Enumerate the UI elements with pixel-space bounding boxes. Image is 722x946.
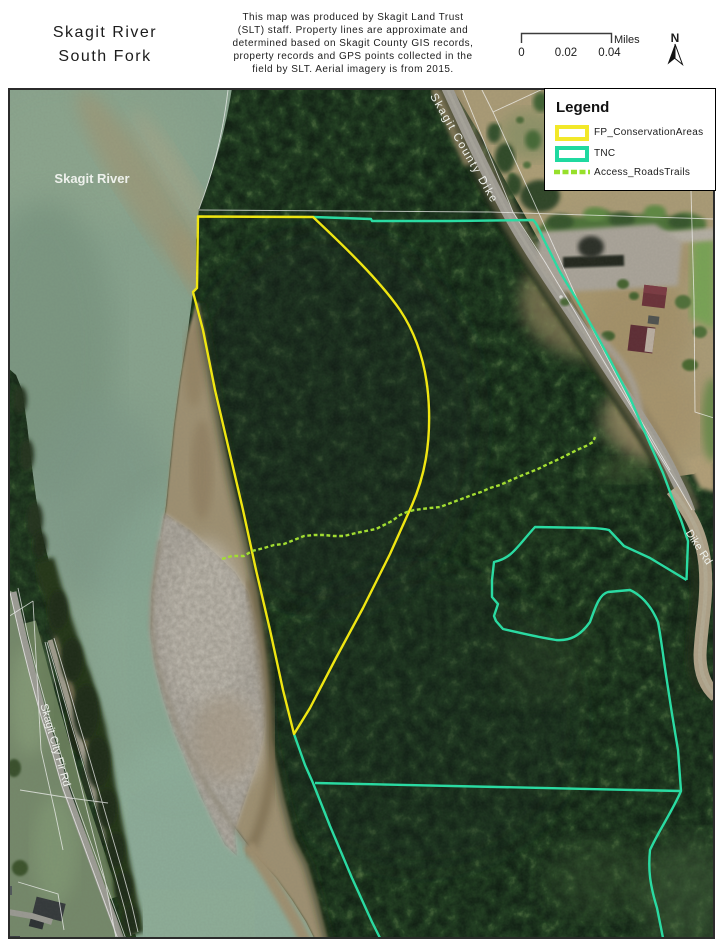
svg-text:0.02: 0.02 xyxy=(555,47,577,59)
svg-text:0.04: 0.04 xyxy=(598,47,621,59)
svg-text:Skagit River: Skagit River xyxy=(54,171,129,186)
svg-text:Miles: Miles xyxy=(614,34,640,46)
svg-text:0: 0 xyxy=(518,47,524,59)
svg-text:N: N xyxy=(671,31,680,45)
